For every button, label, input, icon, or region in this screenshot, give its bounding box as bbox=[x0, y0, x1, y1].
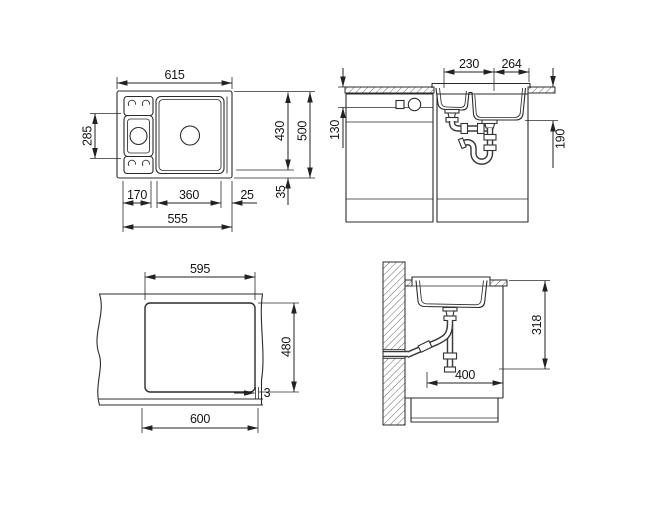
cutout-rect bbox=[145, 303, 255, 392]
cutout-dimension-labels: 595 480 600 3 bbox=[190, 262, 293, 426]
dim-label-130: 130 bbox=[328, 120, 342, 140]
dim-label-600: 600 bbox=[190, 412, 210, 426]
side-section-drawing: 318 400 bbox=[383, 262, 550, 425]
technical-drawing-canvas: 615 285 430 500 35 170 360 25 555 bbox=[0, 0, 648, 530]
worktop-break-edge-left bbox=[97, 294, 101, 405]
socket-circle-icon bbox=[408, 98, 420, 110]
dim-label-3: 3 bbox=[264, 386, 271, 400]
small-bowl-profile-inner bbox=[440, 88, 467, 107]
main-bowl-profile-inner bbox=[475, 88, 523, 118]
dim-label-285: 285 bbox=[81, 126, 95, 146]
dim-label-615: 615 bbox=[165, 68, 185, 82]
base-cabinets bbox=[338, 94, 528, 222]
worktop-hatch bbox=[528, 87, 555, 93]
dim-label-264: 264 bbox=[502, 57, 522, 71]
left-cabinet bbox=[346, 94, 433, 222]
sink-rim bbox=[432, 84, 530, 89]
top-view-drawing: 615 285 430 500 35 170 360 25 555 bbox=[81, 68, 316, 232]
side-section-dimension-labels: 318 400 bbox=[455, 315, 544, 382]
dim-label-25: 25 bbox=[240, 188, 254, 202]
sink-rim-side bbox=[412, 277, 490, 281]
wall-hatch bbox=[383, 262, 405, 425]
bowl-side-profile-inner bbox=[420, 281, 484, 305]
dim-label-360: 360 bbox=[179, 188, 199, 202]
dim-label-170: 170 bbox=[127, 188, 147, 202]
dim-label-430: 430 bbox=[273, 121, 287, 141]
front-section-drawing: 230 264 130 190 bbox=[328, 57, 568, 222]
dim-label-500: 500 bbox=[296, 121, 310, 141]
cutout-dimension-lines bbox=[142, 272, 299, 433]
dim-label-35: 35 bbox=[274, 185, 288, 199]
dim-label-480: 480 bbox=[280, 337, 294, 357]
dim-label-318: 318 bbox=[530, 315, 544, 335]
socket-square-icon bbox=[396, 101, 404, 109]
dim-label-595: 595 bbox=[190, 262, 210, 276]
front-section-dimension-labels: 230 264 130 190 bbox=[328, 57, 568, 149]
cutout-view-drawing: 595 480 600 3 bbox=[97, 262, 299, 433]
worktop-hatch bbox=[345, 87, 434, 93]
drawing-sheet: 615 285 430 500 35 170 360 25 555 bbox=[0, 0, 648, 530]
dim-label-555: 555 bbox=[168, 212, 188, 226]
dim-label-400: 400 bbox=[455, 368, 475, 382]
dim-label-230: 230 bbox=[459, 57, 479, 71]
dim-label-190: 190 bbox=[554, 129, 568, 149]
worktop-hatch-right bbox=[490, 280, 507, 286]
worktop-hatch-left bbox=[405, 280, 412, 286]
sink-outline bbox=[117, 91, 232, 178]
